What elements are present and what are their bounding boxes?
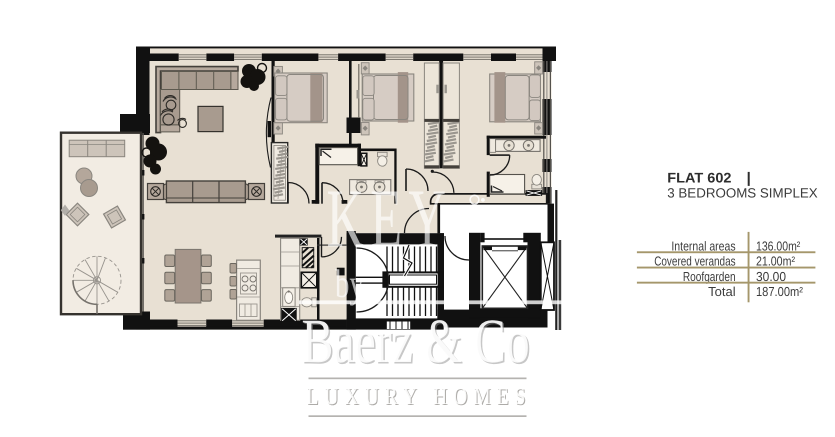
svg-text:136.00m²: 136.00m² [756, 238, 801, 253]
svg-text:3 BEDROOMS SIMPLEX: 3 BEDROOMS SIMPLEX [667, 186, 817, 201]
svg-text:Total: Total [708, 284, 736, 299]
svg-text:FLAT 602: FLAT 602 [667, 170, 731, 186]
svg-text:Baerz & Co: Baerz & Co [302, 306, 530, 376]
svg-text:KEY: KEY [327, 173, 453, 266]
svg-text:Roofgarden: Roofgarden [683, 269, 736, 284]
svg-text:187.00m²: 187.00m² [756, 284, 804, 299]
svg-text:Covered verandas: Covered verandas [654, 254, 736, 269]
svg-text:Internal areas: Internal areas [671, 238, 736, 253]
svg-text:by: by [335, 261, 364, 306]
svg-text:LUXURY HOMES: LUXURY HOMES [307, 384, 532, 410]
svg-text:21.00m²: 21.00m² [756, 254, 796, 269]
svg-text:30.00: 30.00 [756, 269, 786, 284]
